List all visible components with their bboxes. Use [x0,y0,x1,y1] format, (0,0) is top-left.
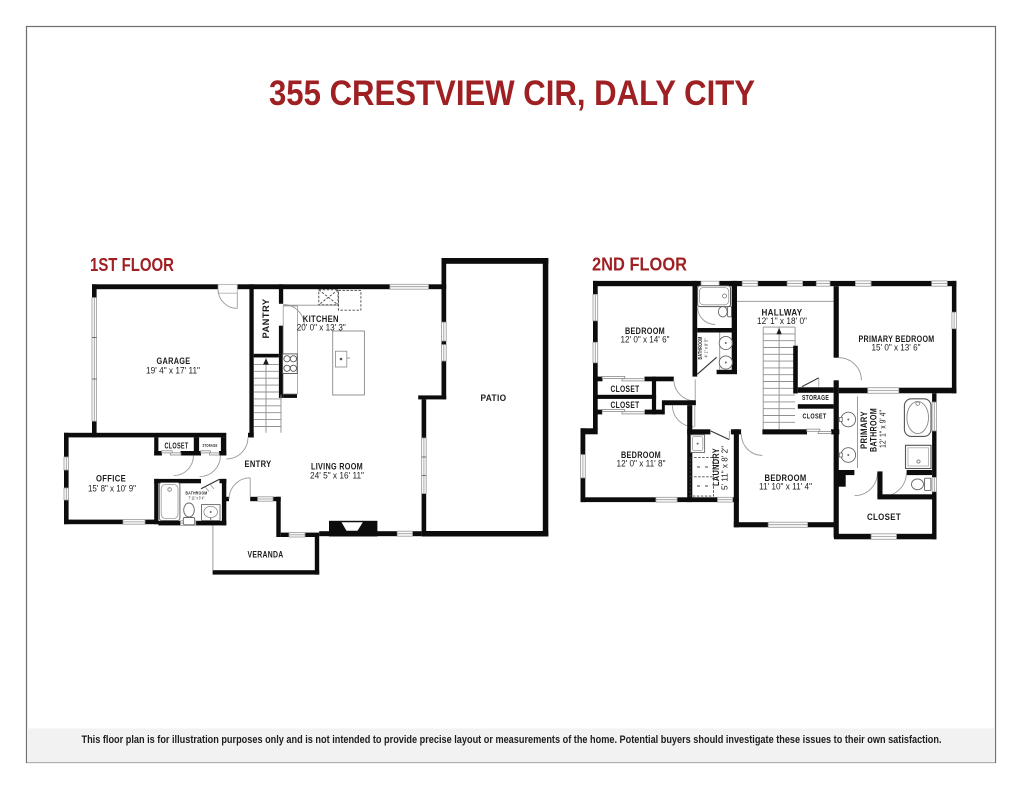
svg-text:20' 0" x 13' 3": 20' 0" x 13' 3" [297,323,346,333]
svg-text:355 CRESTVIEW CIR, DALY CITY: 355 CRESTVIEW CIR, DALY CITY [269,73,755,113]
svg-text:PANTRY: PANTRY [261,299,271,339]
svg-text:11' 10" x 11' 4": 11' 10" x 11' 4" [759,481,812,491]
svg-text:STORAGE: STORAGE [203,443,218,448]
svg-text:STORAGE: STORAGE [802,393,829,402]
svg-text:15' 8" x 10' 9": 15' 8" x 10' 9" [88,484,136,494]
svg-text:This floor plan is for illustr: This floor plan is for illustration purp… [82,734,942,746]
svg-text:15' 0" x 13' 6": 15' 0" x 13' 6" [872,343,921,353]
svg-text:7' 11" x 3' 4": 7' 11" x 3' 4" [189,495,205,500]
svg-text:12' 0" x 14' 6": 12' 0" x 14' 6" [621,334,670,344]
svg-text:CLOSET: CLOSET [611,400,640,410]
svg-text:PATIO: PATIO [481,393,507,404]
svg-text:PRIMARY: PRIMARY [859,411,869,449]
svg-text:12' 1" x 18' 0": 12' 1" x 18' 0" [757,316,807,326]
svg-text:1ST FLOOR: 1ST FLOOR [90,255,174,275]
svg-text:12' 1" x 9' 4": 12' 1" x 9' 4" [879,410,888,448]
svg-text:CLOSET: CLOSET [165,441,189,450]
svg-text:19' 4" x 17' 11": 19' 4" x 17' 11" [146,366,200,376]
svg-text:5' 11" x 8' 2": 5' 11" x 8' 2" [720,446,730,490]
svg-text:VERANDA: VERANDA [248,550,284,561]
svg-text:2ND FLOOR: 2ND FLOOR [592,255,687,275]
svg-text:4' 1" x 8' 5": 4' 1" x 8' 5" [704,338,709,357]
svg-text:CLOSET: CLOSET [867,512,901,523]
svg-text:ENTRY: ENTRY [245,459,272,470]
svg-text:BATHROOM: BATHROOM [869,408,879,452]
svg-text:CLOSET: CLOSET [803,411,827,420]
svg-text:24' 5" x 16' 11": 24' 5" x 16' 11" [310,470,364,480]
svg-text:CLOSET: CLOSET [611,384,640,394]
svg-text:12' 0" x 11' 8": 12' 0" x 11' 8" [617,459,666,469]
